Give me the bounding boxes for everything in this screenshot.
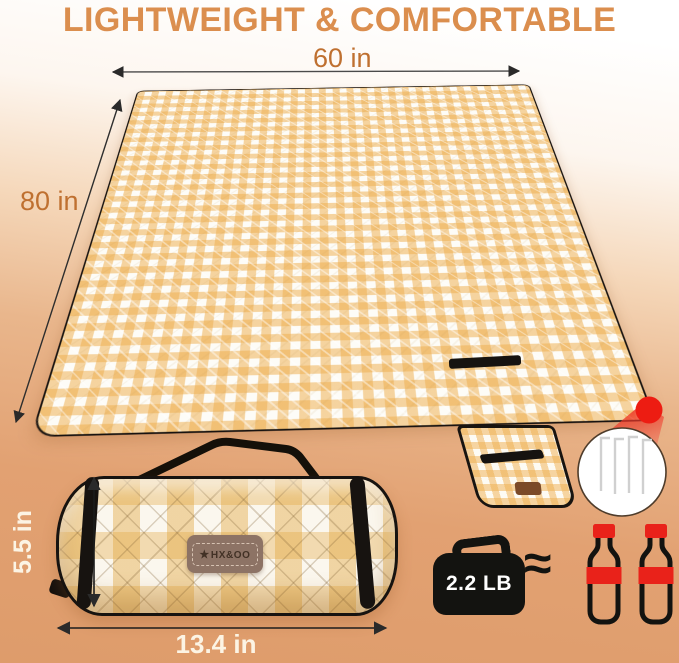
blanket-flap bbox=[456, 425, 578, 508]
product-infographic: LIGHTWEIGHT & COMFORTABLE ★HX&OO bbox=[0, 0, 679, 663]
flap-leather-patch bbox=[514, 482, 541, 495]
label-blanket-width: 60 in bbox=[313, 43, 372, 74]
rolled-blanket: ★HX&OO bbox=[56, 476, 398, 616]
roll-strap-right bbox=[349, 477, 375, 610]
weight-value: 2.2 LB bbox=[433, 553, 525, 615]
label-blanket-length: 80 in bbox=[20, 186, 79, 217]
blanket-gingham-surface bbox=[30, 84, 656, 437]
weight-bag-icon: 2.2 LB bbox=[433, 536, 525, 616]
stakes-zoom-circle bbox=[578, 428, 666, 516]
approx-symbol: ≈ bbox=[524, 538, 551, 588]
roll-strap-left bbox=[76, 477, 99, 610]
star-icon: ★ bbox=[199, 549, 209, 561]
cola-bottle-icon bbox=[584, 524, 624, 627]
cola-bottle-icon bbox=[636, 524, 676, 627]
label-roll-width: 13.4 in bbox=[150, 629, 282, 660]
flap-strap bbox=[479, 449, 545, 464]
brand-patch: ★HX&OO bbox=[187, 535, 263, 573]
tent-stakes-icon bbox=[601, 437, 652, 494]
brand-name: HX&OO bbox=[211, 550, 251, 561]
brand-patch-label: ★HX&OO bbox=[192, 543, 257, 566]
label-roll-height: 5.5 in bbox=[9, 506, 33, 578]
